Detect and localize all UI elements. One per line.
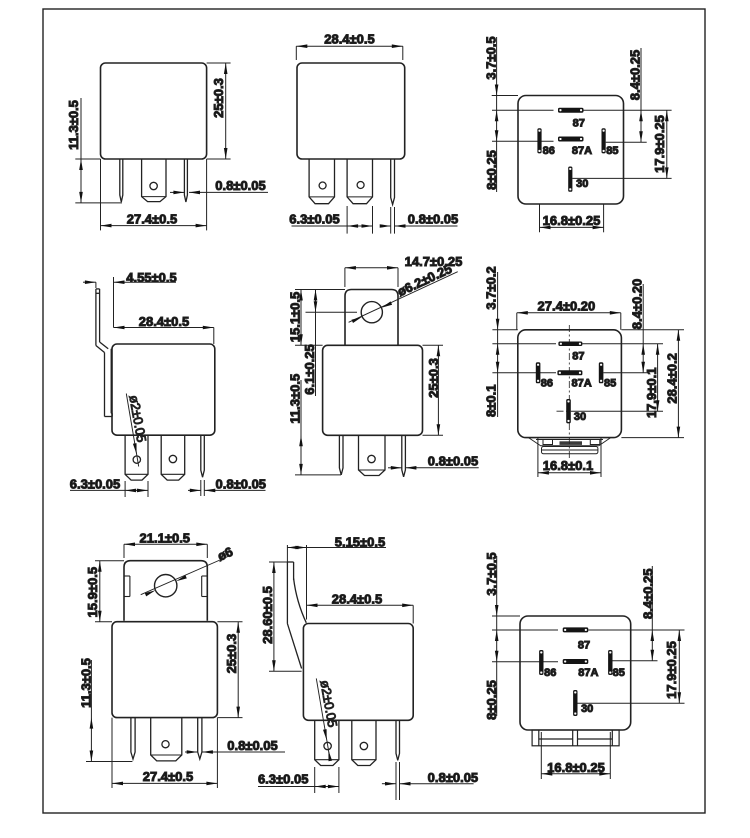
svg-text:87: 87 <box>573 118 585 130</box>
svg-text:8±0.25: 8±0.25 <box>484 150 499 190</box>
svg-text:8±0.25: 8±0.25 <box>484 680 499 720</box>
svg-text:11.3±0.5: 11.3±0.5 <box>288 374 303 424</box>
svg-text:25±0.3: 25±0.3 <box>224 634 239 674</box>
svg-text:27.4±0.20: 27.4±0.20 <box>538 299 596 314</box>
svg-text:6.1±0.25: 6.1±0.25 <box>302 344 317 395</box>
svg-text:0.8±0.05: 0.8±0.05 <box>227 738 278 753</box>
svg-text:8.4±0.25: 8.4±0.25 <box>628 50 643 101</box>
svg-text:0.8±0.05: 0.8±0.05 <box>408 212 459 227</box>
svg-text:0.8±0.05: 0.8±0.05 <box>216 477 267 492</box>
svg-text:30: 30 <box>581 703 593 715</box>
svg-text:17.9±0.25: 17.9±0.25 <box>652 115 667 173</box>
svg-text:27.4±0.5: 27.4±0.5 <box>143 769 194 784</box>
svg-text:87A: 87A <box>578 667 598 679</box>
svg-text:87A: 87A <box>572 377 592 389</box>
svg-text:5.15±0.5: 5.15±0.5 <box>335 535 386 550</box>
svg-text:11.3±0.5: 11.3±0.5 <box>79 658 94 708</box>
svg-text:16.8±0.25: 16.8±0.25 <box>543 213 601 228</box>
svg-text:0.8±0.05: 0.8±0.05 <box>428 770 479 785</box>
svg-text:30: 30 <box>574 411 586 423</box>
svg-text:15.9±0.5: 15.9±0.5 <box>85 567 100 618</box>
svg-text:25±0.3: 25±0.3 <box>211 78 226 118</box>
svg-text:11.3±0.5: 11.3±0.5 <box>66 100 81 150</box>
svg-text:0.8±0.05: 0.8±0.05 <box>215 178 266 193</box>
svg-text:28.4±0.5: 28.4±0.5 <box>139 314 190 329</box>
svg-text:28.4±0.5: 28.4±0.5 <box>332 592 383 607</box>
svg-text:8.4±0.25: 8.4±0.25 <box>641 569 656 620</box>
svg-text:28.4±0.2: 28.4±0.2 <box>665 353 680 404</box>
svg-text:16.8±0.25: 16.8±0.25 <box>547 760 605 775</box>
svg-text:25±0.3: 25±0.3 <box>426 358 441 398</box>
svg-text:6.3±0.05: 6.3±0.05 <box>70 477 121 492</box>
svg-text:21.1±0.5: 21.1±0.5 <box>140 531 191 546</box>
svg-text:8.4±0.20: 8.4±0.20 <box>630 279 645 330</box>
svg-text:3.7±0.2: 3.7±0.2 <box>484 266 499 309</box>
svg-text:27.4±0.5: 27.4±0.5 <box>127 212 178 227</box>
svg-text:87: 87 <box>572 351 584 363</box>
svg-text:28.4±0.5: 28.4±0.5 <box>324 32 375 47</box>
svg-text:3.7±0.5: 3.7±0.5 <box>484 552 499 595</box>
svg-text:16.8±0.1: 16.8±0.1 <box>543 458 594 473</box>
svg-text:86: 86 <box>541 377 553 389</box>
svg-text:87: 87 <box>578 640 590 652</box>
svg-text:6.3±0.05: 6.3±0.05 <box>258 772 309 787</box>
svg-text:8±0.1: 8±0.1 <box>484 385 499 417</box>
svg-text:15.1±0.5: 15.1±0.5 <box>287 292 302 343</box>
svg-text:86: 86 <box>544 667 556 679</box>
svg-text:28.60±0.5: 28.60±0.5 <box>260 586 275 644</box>
svg-text:17.9±0.1: 17.9±0.1 <box>644 368 659 419</box>
svg-text:30: 30 <box>576 178 588 190</box>
svg-text:4.55±0.5: 4.55±0.5 <box>126 270 177 285</box>
svg-text:87A: 87A <box>572 145 592 157</box>
svg-text:17.9±0.25: 17.9±0.25 <box>664 641 679 699</box>
svg-text:3.7±0.5: 3.7±0.5 <box>484 36 499 79</box>
svg-text:85: 85 <box>604 377 616 389</box>
svg-text:85: 85 <box>613 667 625 679</box>
svg-text:6.3±0.05: 6.3±0.05 <box>289 212 340 227</box>
svg-text:85: 85 <box>606 145 618 157</box>
svg-text:0.8±0.05: 0.8±0.05 <box>428 454 479 469</box>
svg-text:86: 86 <box>543 145 555 157</box>
